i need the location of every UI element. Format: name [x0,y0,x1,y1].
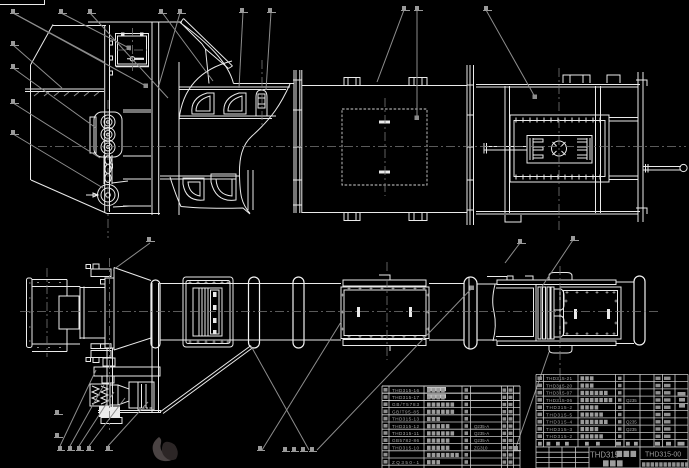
svg-text:Q235: Q235 [626,427,637,432]
svg-text:Q235: Q235 [626,420,637,425]
svg-text:THD315-16: THD315-16 [392,388,419,393]
svg-text:THD315-17: THD315-17 [392,395,419,400]
svg-text:THD315-11: THD315-11 [392,431,419,436]
svg-text:Q235-A: Q235-A [474,438,489,443]
svg-text:GB5782-86: GB5782-86 [392,438,419,443]
svg-text:THD315-3: THD315-3 [546,427,572,432]
svg-text:THD315-07: THD315-07 [546,391,572,396]
svg-text:THD315-06: THD315-06 [546,398,572,403]
svg-text:THD315-21: THD315-21 [546,376,572,381]
svg-text:THD315: THD315 [590,451,620,460]
svg-text:THD315-00: THD315-00 [645,452,681,459]
svg-text:THD315-20: THD315-20 [546,383,572,388]
svg-text:THD315-10: THD315-10 [392,445,419,450]
svg-text:THD315-12: THD315-12 [392,424,419,429]
svg-text:ZG310: ZG310 [474,445,488,450]
svg-text:THD315-4: THD315-4 [546,420,572,425]
svg-text:GB/T95-85: GB/T95-85 [392,409,419,414]
svg-text:Q235-A: Q235-A [474,424,489,429]
svg-text:Q235: Q235 [626,398,637,403]
svg-text:Q235-A: Q235-A [474,431,489,436]
svg-text:ZQ350-1: ZQ350-1 [392,460,419,465]
svg-text:THD315-2: THD315-2 [546,405,572,410]
svg-text:THD315-13: THD315-13 [392,417,419,422]
svg-text:GB/T5783: GB/T5783 [392,402,419,407]
svg-text:THD315-5: THD315-5 [546,412,572,417]
svg-text:THD315-2: THD315-2 [546,434,572,439]
